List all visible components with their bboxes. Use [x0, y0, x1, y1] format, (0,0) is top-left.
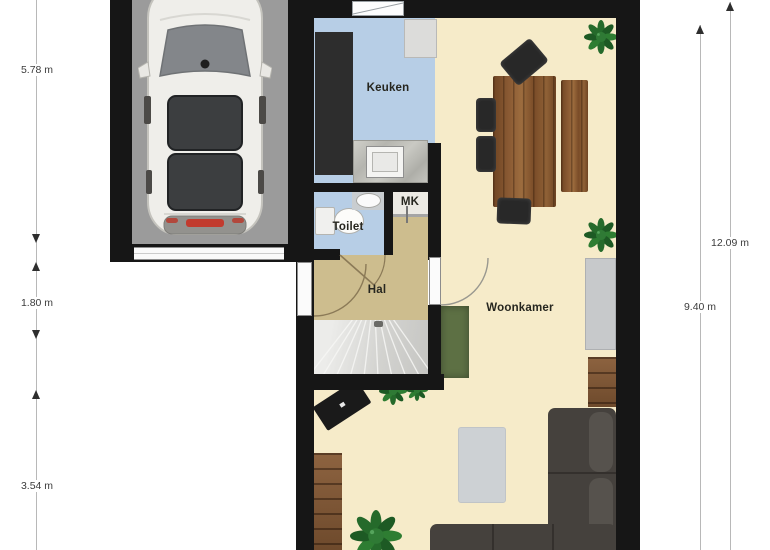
floorplan-canvas: Keuken Toilet MK Hal Woonkamer 5.78 m 1.…: [0, 0, 770, 550]
living-room-door-swing-arc: [441, 258, 488, 305]
dimension-arrow: [726, 2, 734, 11]
dimension-arrow: [32, 234, 40, 243]
dimension-label: 5.78 m: [18, 64, 56, 76]
room-label-living: Woonkamer: [486, 302, 553, 314]
dimension-arrow: [32, 262, 40, 271]
window-glazing-line: [353, 3, 403, 14]
dimension-line-left: [36, 0, 37, 550]
room-label-mk: MK: [401, 196, 419, 208]
toilet-door-swing-arc: [374, 255, 385, 285]
room-label-toilet: Toilet: [332, 221, 363, 233]
room-label-kitchen: Keuken: [367, 82, 410, 94]
dimension-line-right-outer: [730, 2, 731, 550]
room-label-hall: Hal: [368, 284, 387, 296]
dimension-label: 12.09 m: [708, 237, 752, 249]
dimension-label: 9.40 m: [681, 301, 719, 313]
dimension-label: 1.80 m: [18, 297, 56, 309]
dimension-label: 3.54 m: [18, 480, 56, 492]
dimension-line-right-inner: [700, 25, 701, 550]
toilet-door-leaf: [340, 255, 374, 285]
dimension-arrow: [696, 25, 704, 34]
dimension-arrow: [32, 390, 40, 399]
dimension-arrow: [32, 330, 40, 339]
